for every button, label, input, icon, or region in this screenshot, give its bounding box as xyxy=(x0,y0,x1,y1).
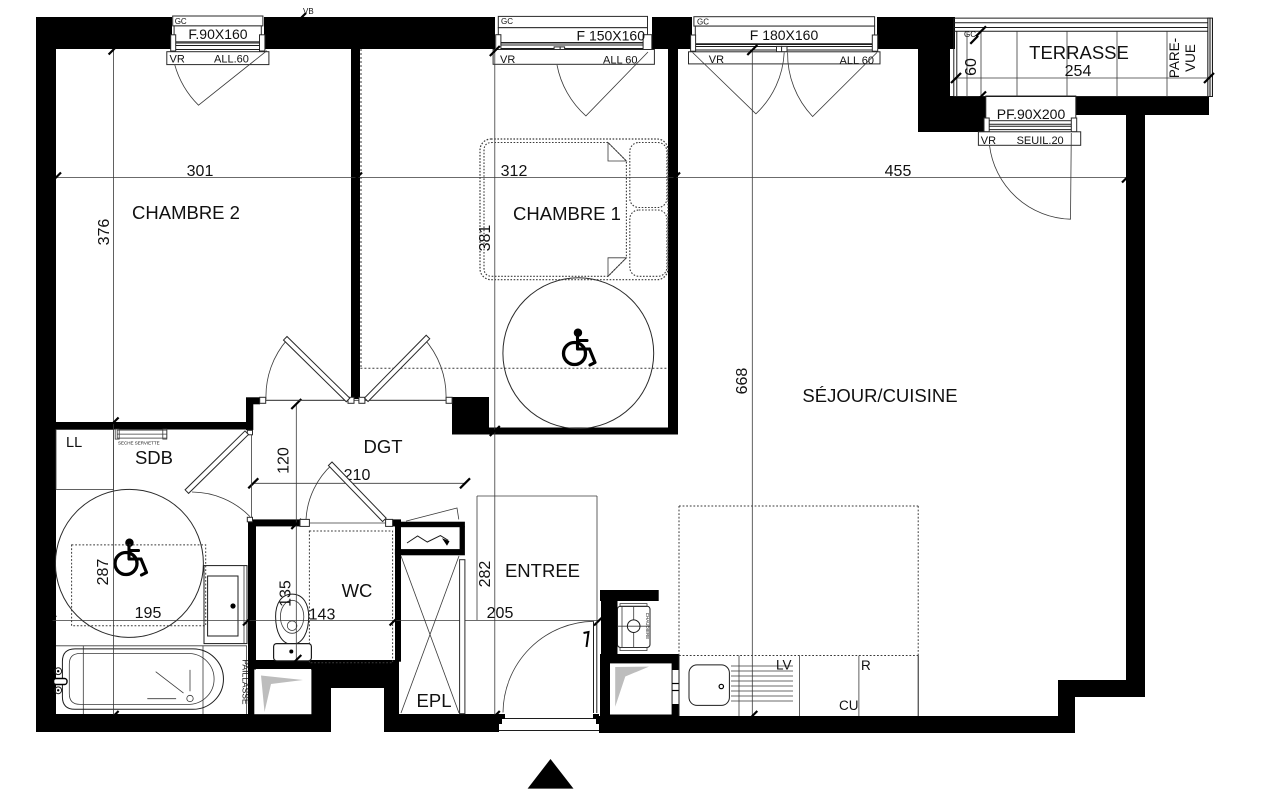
svg-text:F 180X160: F 180X160 xyxy=(750,27,819,43)
svg-text:DGT: DGT xyxy=(363,436,402,457)
svg-text:CHAUDIERE: CHAUDIERE xyxy=(645,613,650,640)
svg-text:VR: VR xyxy=(170,53,185,65)
svg-text:376: 376 xyxy=(96,219,113,246)
svg-text:135: 135 xyxy=(278,580,295,607)
svg-text:CU: CU xyxy=(839,698,859,713)
svg-text:LL: LL xyxy=(66,435,82,451)
svg-text:R: R xyxy=(861,658,871,673)
svg-text:312: 312 xyxy=(501,163,528,180)
svg-text:GC: GC xyxy=(501,17,513,26)
svg-text:143: 143 xyxy=(309,607,336,624)
svg-text:SDB: SDB xyxy=(135,447,173,468)
svg-text:TERRASSE: TERRASSE xyxy=(1029,42,1129,63)
svg-text:287: 287 xyxy=(95,559,112,586)
svg-text:205: 205 xyxy=(487,605,514,622)
svg-text:GC: GC xyxy=(697,18,709,27)
svg-text:CHAMBRE 1: CHAMBRE 1 xyxy=(513,203,621,224)
svg-text:VR: VR xyxy=(981,135,996,147)
svg-text:ALL 60: ALL 60 xyxy=(603,54,637,66)
svg-text:668: 668 xyxy=(734,368,751,395)
svg-text:SECHE SERVIETTE: SECHE SERVIETTE xyxy=(118,441,160,446)
svg-text:195: 195 xyxy=(135,605,162,622)
svg-text:PAILLASSE: PAILLASSE xyxy=(241,659,251,705)
svg-text:VR: VR xyxy=(500,54,515,66)
svg-text:F 150X160: F 150X160 xyxy=(577,28,646,44)
svg-text:EPL: EPL xyxy=(417,690,452,711)
svg-text:ALL.60: ALL.60 xyxy=(214,54,249,66)
svg-text:VR: VR xyxy=(709,54,724,66)
svg-text:SEUIL.20: SEUIL.20 xyxy=(1017,135,1064,147)
svg-text:254: 254 xyxy=(1065,63,1092,80)
svg-text:282: 282 xyxy=(477,561,494,588)
svg-text:GC: GC xyxy=(964,30,976,39)
svg-text:60: 60 xyxy=(963,58,980,76)
svg-text:SÉJOUR/CUISINE: SÉJOUR/CUISINE xyxy=(802,385,957,406)
svg-text:PF.90X200: PF.90X200 xyxy=(997,106,1066,122)
svg-text:301: 301 xyxy=(187,163,214,180)
svg-text:PARE-: PARE- xyxy=(1167,38,1182,78)
svg-text:ENTREE: ENTREE xyxy=(505,560,580,581)
svg-text:381: 381 xyxy=(477,225,494,252)
svg-text:VUE: VUE xyxy=(1183,44,1198,72)
svg-text:120: 120 xyxy=(276,447,293,474)
svg-text:455: 455 xyxy=(885,163,912,180)
svg-text:LV: LV xyxy=(776,658,792,673)
svg-text:CHAMBRE 2: CHAMBRE 2 xyxy=(132,202,240,223)
svg-text:WC: WC xyxy=(342,580,373,601)
svg-text:F.90X160: F.90X160 xyxy=(188,26,247,42)
svg-text:GC: GC xyxy=(175,17,187,26)
